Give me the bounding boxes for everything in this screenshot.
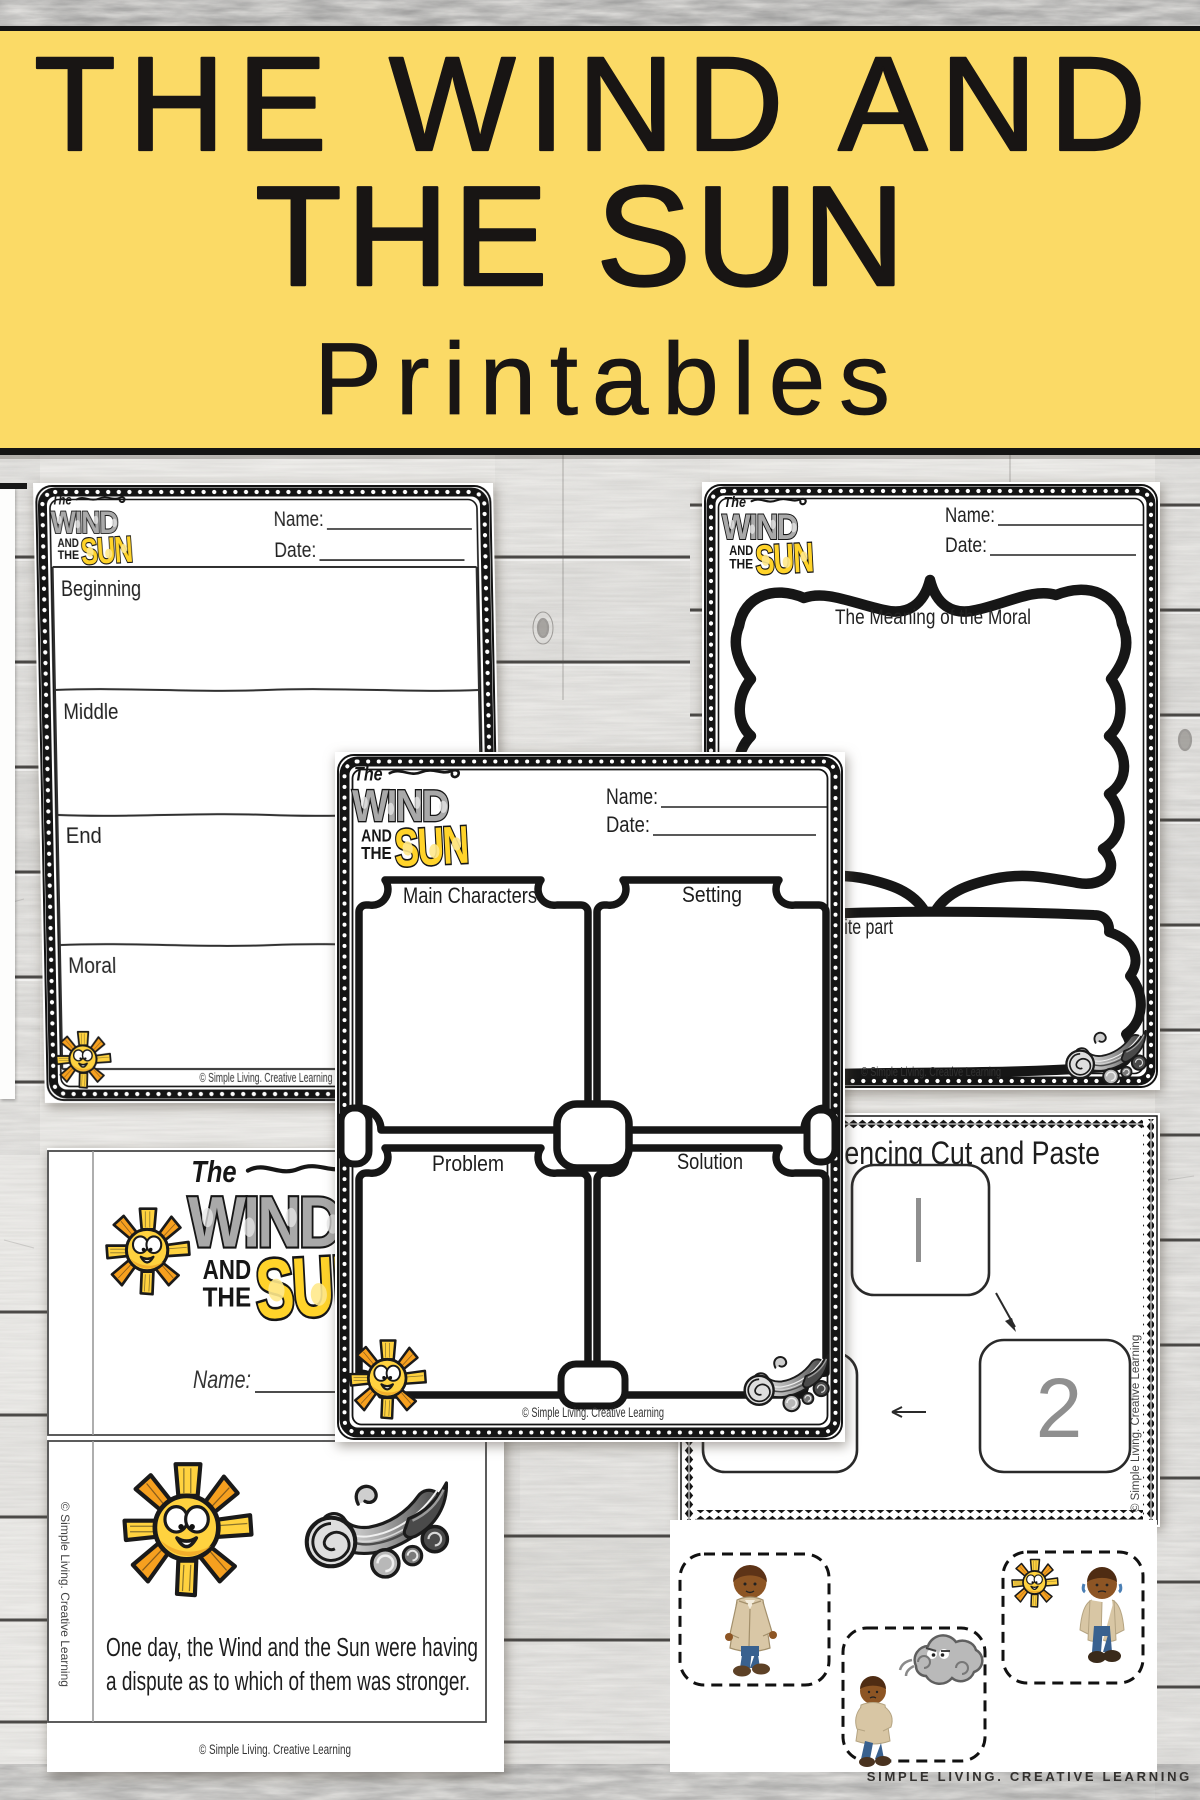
- svg-text:Name:: Name:: [606, 784, 658, 809]
- svg-text:Middle: Middle: [63, 699, 118, 724]
- svg-text:© Simple Living. Creative Lear: © Simple Living. Creative Learning: [861, 1065, 1001, 1079]
- svg-text:Date:: Date:: [274, 539, 316, 562]
- svg-text:Date:: Date:: [945, 534, 987, 557]
- svg-text:2: 2: [1036, 1361, 1083, 1455]
- svg-text:One day, the Wind and the Sun: One day, the Wind and the Sun were havin…: [106, 1634, 478, 1662]
- svg-text:© Simple Living. Creative Lear: © Simple Living. Creative Learning: [199, 1742, 351, 1757]
- svg-text:Name:: Name:: [945, 504, 995, 527]
- svg-text:Printables: Printables: [314, 322, 890, 436]
- svg-text:The Meaning of the Moral: The Meaning of the Moral: [835, 606, 1031, 629]
- svg-text:© Simple Living. Creative Lear: © Simple Living. Creative Learning: [1130, 1335, 1142, 1512]
- svg-text:THE SUN: THE SUN: [255, 157, 905, 316]
- svg-text:Name:: Name:: [273, 508, 323, 531]
- svg-text:End: End: [66, 823, 102, 848]
- svg-text:Name:: Name:: [193, 1366, 251, 1394]
- svg-text:Setting: Setting: [682, 882, 742, 907]
- svg-text:© Simple Living. Creative Lear: © Simple Living. Creative Learning: [199, 1071, 332, 1085]
- svg-text:© Simple Living. Creative Lear: © Simple Living. Creative Learning: [522, 1405, 664, 1420]
- svg-text:Problem: Problem: [432, 1151, 504, 1176]
- svg-text:Main Characters: Main Characters: [403, 883, 537, 908]
- svg-text:Moral: Moral: [68, 953, 116, 978]
- svg-text:a dispute as to which of them: a dispute as to which of them was strong…: [106, 1668, 470, 1696]
- svg-text:Solution: Solution: [677, 1149, 743, 1174]
- svg-text:Beginning: Beginning: [61, 576, 141, 601]
- svg-text:Date:: Date:: [606, 812, 650, 837]
- svg-text:© Simple Living. Creative Lear: © Simple Living. Creative Learning: [58, 1502, 72, 1687]
